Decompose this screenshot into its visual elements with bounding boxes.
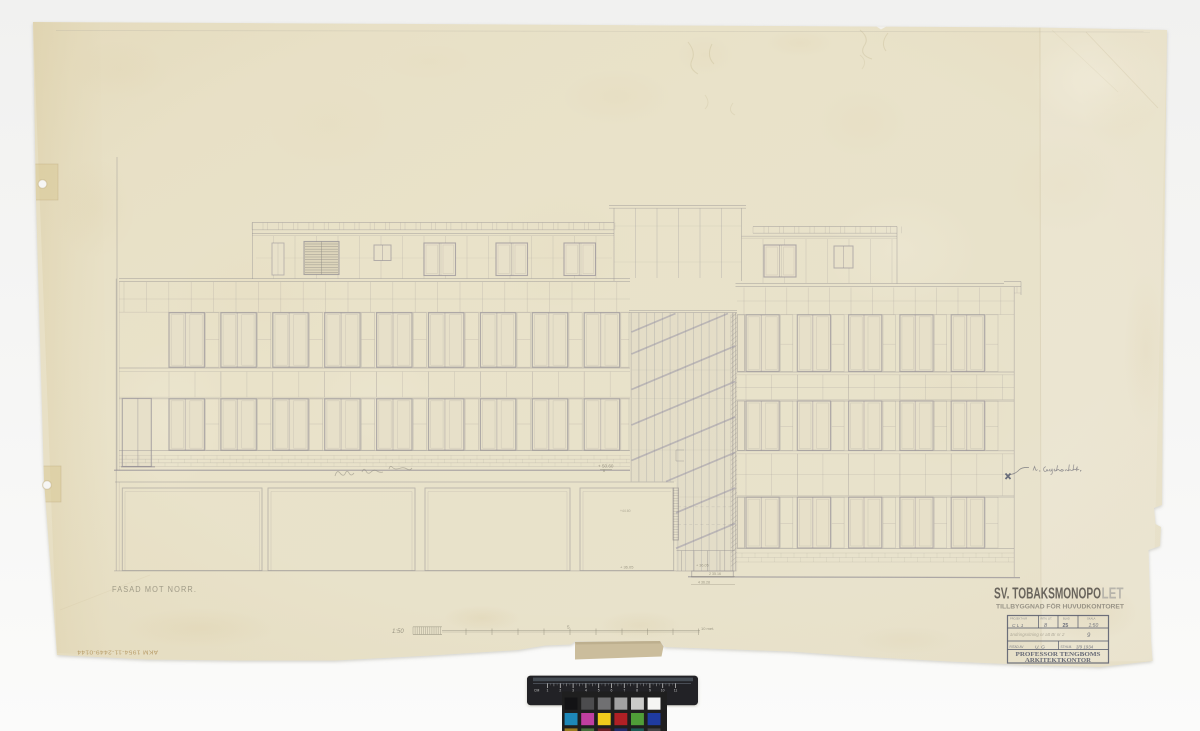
svg-text:STHLM.: STHLM. — [1061, 645, 1073, 649]
svg-text:2 35.16: 2 35.16 — [709, 572, 721, 576]
svg-text:+44.60: +44.60 — [620, 509, 631, 513]
svg-text:5: 5 — [567, 625, 570, 630]
svg-text:ARKITEKTKONTOR: ARKITEKTKONTOR — [1025, 658, 1092, 664]
svg-text:C L 1: C L 1 — [1012, 623, 1024, 629]
svg-text:RITN. LIT.: RITN. LIT. — [1041, 617, 1053, 621]
svg-text:SKALA: SKALA — [1087, 617, 1096, 621]
svg-text:SV. TOBAKSMONOPO: SV. TOBAKSMONOPO — [994, 586, 1101, 603]
svg-text:2: 2 — [559, 689, 561, 693]
svg-text:TILLBYGGNAD FÖR HUVUDKONTORET: TILLBYGGNAD FÖR HUVUDKONTORET — [996, 601, 1124, 610]
svg-text:U. G: U. G — [1035, 644, 1045, 650]
svg-text:11: 11 — [674, 689, 678, 693]
svg-text:1:50: 1:50 — [392, 629, 404, 635]
svg-text:1: 1 — [547, 689, 549, 693]
svg-text:+ 50.60: + 50.60 — [598, 464, 614, 469]
svg-text:RITAD AV: RITAD AV — [1010, 645, 1025, 649]
svg-text:ändringsritning nr att Br nr 2: ändringsritning nr att Br nr 2 — [1010, 632, 1065, 637]
svg-text:FASAD MOT NORR.: FASAD MOT NORR. — [112, 585, 197, 594]
svg-text:AKM 1954-11-2449-0144: AKM 1954-11-2449-0144 — [77, 649, 158, 655]
svg-text:3/9 1934: 3/9 1934 — [1076, 644, 1094, 649]
svg-text:+ 36.05: + 36.05 — [620, 565, 634, 570]
svg-text:4 36.28: 4 36.28 — [698, 581, 710, 585]
svg-text:25: 25 — [1063, 623, 1069, 629]
svg-text:LET: LET — [1102, 586, 1124, 603]
svg-text:PROJEKT-N:R: PROJEKT-N:R — [1010, 617, 1027, 621]
svg-text:1:50: 1:50 — [1089, 623, 1099, 629]
svg-text:BLAD: BLAD — [1063, 617, 1070, 621]
svg-text:+ 36.05: + 36.05 — [696, 564, 709, 568]
svg-text:CM: CM — [534, 689, 539, 693]
svg-text:10 met.: 10 met. — [701, 626, 714, 631]
